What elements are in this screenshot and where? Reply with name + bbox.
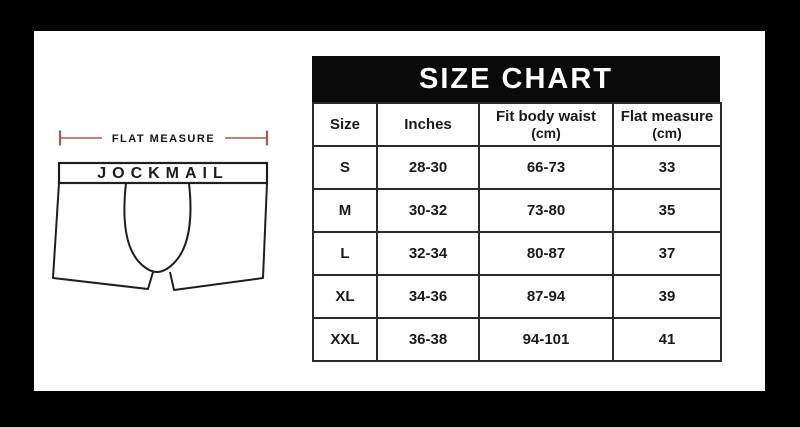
table-row: M 30-32 73-80 35 <box>313 189 721 232</box>
inches-cell: 30-32 <box>377 189 479 232</box>
right-leg-outline <box>170 183 267 290</box>
image-frame: FLAT MEASURE JOCKMAIL SIZE CHART Size In… <box>0 0 800 427</box>
size-table: Size Inches Fit body waist (cm) Flat mea… <box>312 102 722 362</box>
fit-body-waist-cell: 73-80 <box>479 189 613 232</box>
flat-measure-cell: 37 <box>613 232 721 275</box>
fit-body-waist-cell: 94-101 <box>479 318 613 361</box>
size-chart-title: SIZE CHART <box>419 63 613 96</box>
brand-logo: JOCKMAIL <box>59 163 267 183</box>
inches-cell: 28-30 <box>377 146 479 189</box>
fit-body-waist-cell: 66-73 <box>479 146 613 189</box>
size-chart-banner: SIZE CHART <box>312 56 720 102</box>
size-cell: XXL <box>313 318 377 361</box>
size-cell: M <box>313 189 377 232</box>
fit-body-waist-cell: 87-94 <box>479 275 613 318</box>
table-row: L 32-34 80-87 37 <box>313 232 721 275</box>
flat-measure-cell: 39 <box>613 275 721 318</box>
size-cell: L <box>313 232 377 275</box>
table-row: XL 34-36 87-94 39 <box>313 275 721 318</box>
size-cell: XL <box>313 275 377 318</box>
inches-cell: 34-36 <box>377 275 479 318</box>
flat-measure-cell: 33 <box>613 146 721 189</box>
left-leg-outline <box>53 183 153 289</box>
table-row: XXL 36-38 94-101 41 <box>313 318 721 361</box>
content-area: FLAT MEASURE JOCKMAIL SIZE CHART Size In… <box>34 31 765 391</box>
column-header-inches: Inches <box>377 103 479 146</box>
flat-measure-label: FLAT MEASURE <box>60 130 267 146</box>
size-cell: S <box>313 146 377 189</box>
flat-measure-cell: 35 <box>613 189 721 232</box>
column-header-flat-measure: Flat measure (cm) <box>613 103 721 146</box>
table-row: S 28-30 66-73 33 <box>313 146 721 189</box>
inches-cell: 36-38 <box>377 318 479 361</box>
inches-cell: 32-34 <box>377 232 479 275</box>
underwear-drawing <box>34 121 294 301</box>
column-header-fit-body-waist: Fit body waist (cm) <box>479 103 613 146</box>
size-chart: SIZE CHART Size Inches Fit body waist ( <box>312 56 720 362</box>
pouch-curve <box>124 183 190 272</box>
flat-measure-cell: 41 <box>613 318 721 361</box>
header-row: Size Inches Fit body waist (cm) Flat mea… <box>313 103 721 146</box>
column-header-size: Size <box>313 103 377 146</box>
fit-body-waist-cell: 80-87 <box>479 232 613 275</box>
